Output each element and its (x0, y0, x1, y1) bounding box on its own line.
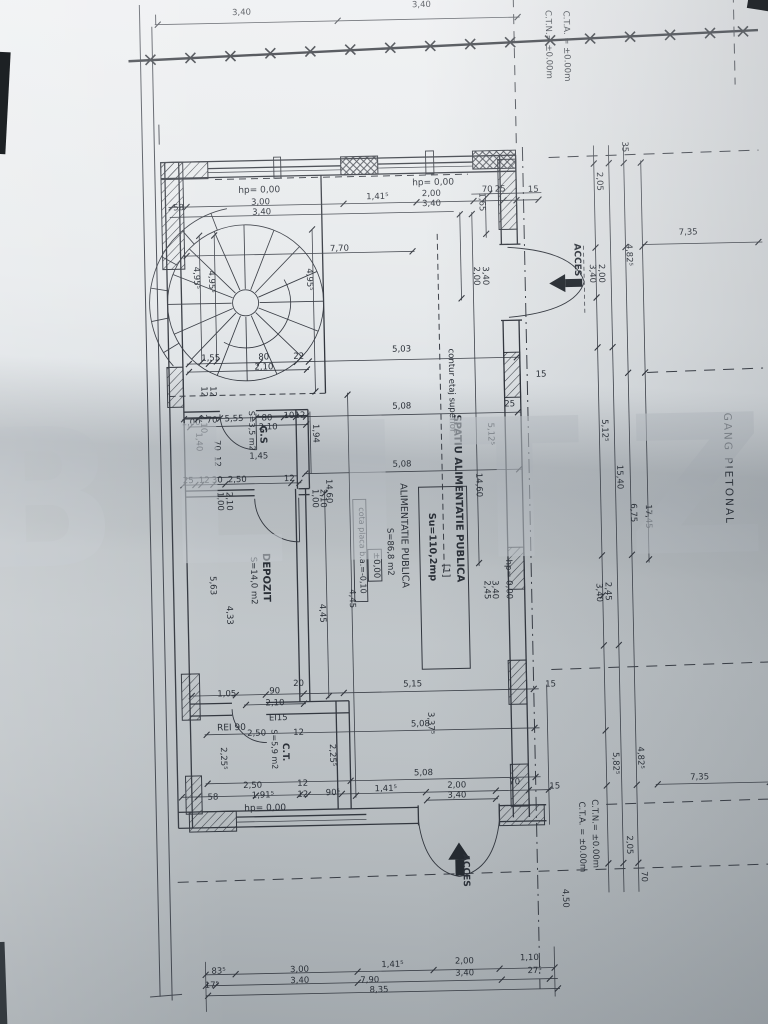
dim: 1,55 (201, 353, 220, 363)
fire-rating-ei15: EI15 (269, 713, 288, 723)
dim: 2,05 (594, 172, 604, 191)
dim: 70 (509, 777, 520, 787)
hp-label: hp= 0,00 (238, 185, 280, 196)
dim: 3,00 (290, 965, 309, 975)
level-note-ctn-bottom: C.T.N.= ±0.00m (589, 799, 600, 868)
dim: 2,00 (455, 956, 474, 966)
dim: 4,33 (224, 606, 234, 625)
dim: 12 (293, 728, 304, 738)
dim: 5,08 (414, 768, 433, 778)
dim: 7,35 (679, 227, 698, 237)
dim: 5,03 (392, 344, 411, 354)
dim: 12 (297, 790, 308, 800)
dim: 3,37⁵ (425, 712, 435, 735)
dim: 7,35 (690, 772, 709, 782)
dim: 15 (545, 679, 556, 689)
dim: 3,40 (480, 266, 490, 285)
dim: 5,15 (403, 679, 422, 689)
dim: 58 (173, 203, 184, 213)
dim: 7,70 (330, 244, 349, 254)
dim: 3,00 (251, 197, 270, 207)
level-note-cta-top: C.T.A. = ±0.00m (561, 11, 572, 82)
level-note-ctn-top: C.T.N.= ±0.00m (543, 10, 554, 79)
dim: 83⁵ (211, 966, 225, 976)
dim: 2,10 (254, 362, 273, 372)
dim: 2,50 (247, 729, 266, 739)
dim: 90 (269, 686, 280, 696)
dim: 1,10 (520, 953, 539, 963)
site-dim: 3,40 (412, 0, 431, 10)
dim: 3,40 (290, 976, 309, 986)
dim: 4,50 (560, 889, 570, 908)
dim: 2,10 (265, 698, 284, 708)
room-area-ct: S=5,9 m2 (270, 729, 280, 769)
dim: 2,05 (624, 835, 634, 854)
dim: 7,90 (360, 975, 379, 985)
dim: 1,05 (217, 689, 236, 699)
dim: 4,95⁵ (206, 270, 216, 293)
property-fence (128, 26, 758, 65)
dim: 17⁵ (205, 981, 219, 991)
dim: 4,82⁵ (623, 244, 633, 267)
dim: 25 (495, 184, 506, 194)
site-dim: 3,40 (232, 8, 251, 18)
dim: 1,41⁵ (366, 192, 389, 202)
dim: 22 (293, 352, 304, 362)
dim: 12 (297, 779, 308, 789)
dim: 80 (258, 352, 269, 362)
dim: 2,50 (243, 781, 262, 791)
dim: 2,25⁵ (327, 744, 337, 767)
room-label-ct: C.T. (280, 743, 290, 761)
dim: 2,00 (422, 189, 441, 199)
acces-label-right: ACCES (571, 243, 582, 276)
dim: 2,00 (471, 266, 481, 285)
blitz-watermark: BLITZ (0, 389, 768, 606)
dim: 27⁵ (527, 966, 541, 976)
hp-label: hp= 0,00 (244, 803, 286, 814)
dim: 8,35 (369, 985, 388, 995)
dim: 3,40 (447, 790, 466, 800)
dim: 2,25⁵ (218, 747, 228, 770)
dim: 1,65 (476, 192, 486, 211)
dim: 20 (293, 679, 304, 689)
dim: 3,40 (252, 207, 271, 217)
dim: 5,82⁵ (610, 752, 620, 775)
dim: 3,40 (587, 264, 597, 283)
dim: 4,82⁵ (635, 746, 645, 769)
photo-edge-bottom-left (0, 942, 7, 1024)
dim: 4,95⁵ (191, 267, 201, 290)
acces-arrow-right (549, 274, 582, 293)
photo-of-floor-plan: 3,403,40C.T.N.= ±0.00mC.T.A. = ±0.00m352… (0, 0, 768, 1024)
acces-label-bottom: ACCES (460, 854, 471, 887)
dim: 35 (619, 141, 629, 152)
dim: 70 (639, 871, 649, 882)
dim: 1,41⁵ (375, 784, 398, 794)
dim: 90⁵ (326, 788, 340, 798)
dim: 1,41⁵ (381, 960, 404, 970)
dim: 58 (207, 793, 218, 803)
hp-label: hp= 0,00 (412, 177, 454, 188)
dim: 3,40 (455, 968, 474, 978)
dim: 4,95⁵ (304, 268, 314, 291)
plan-sheet: 3,403,40C.T.N.= ±0.00mC.T.A. = ±0.00m352… (0, 0, 768, 1024)
dim: 15 (549, 781, 560, 791)
level-note-cta-bottom: C.T.A. = ±0.00m (576, 801, 587, 872)
dim: 2,00 (447, 780, 466, 790)
fire-rating-rei90: REI 90 (217, 723, 246, 734)
dim: 3,40 (422, 199, 441, 209)
dim: 4,45 (317, 604, 327, 623)
dim: 15 (528, 185, 539, 195)
dim: 1,91⁵ (252, 790, 275, 800)
